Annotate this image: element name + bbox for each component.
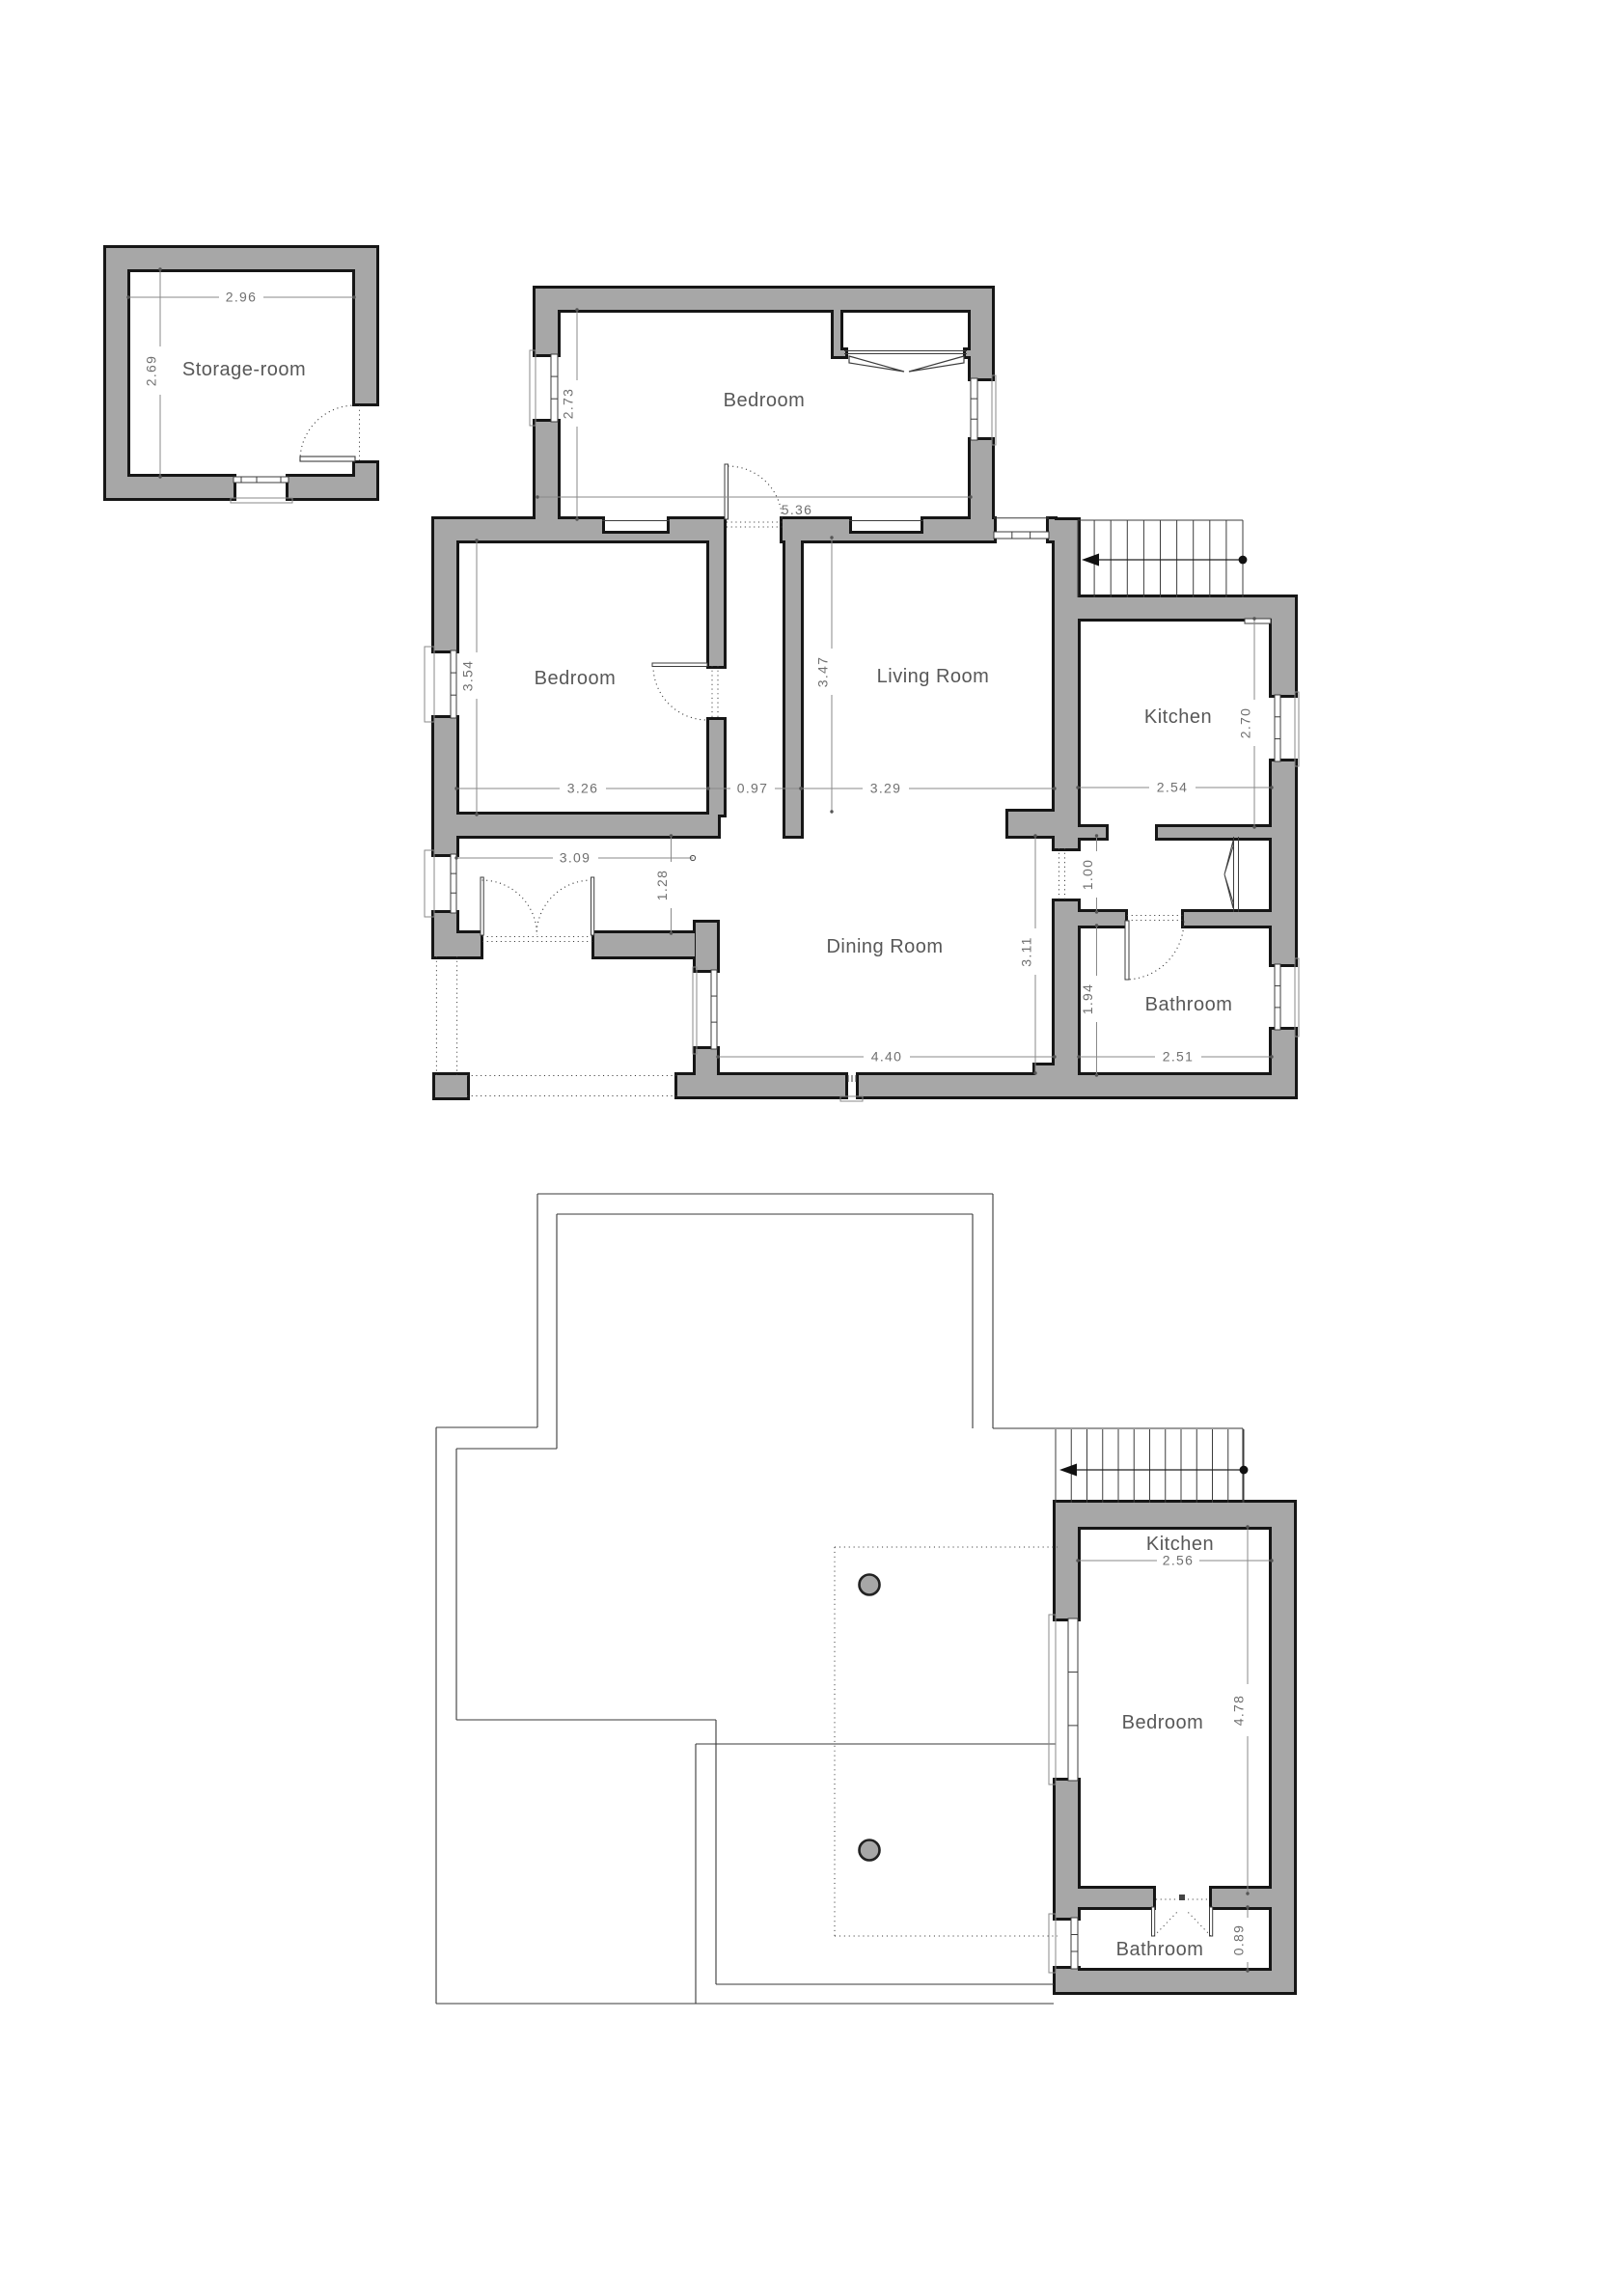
svg-text:Bedroom: Bedroom [1122, 1712, 1204, 1733]
svg-text:2.51: 2.51 [1163, 1049, 1194, 1065]
svg-text:4.40: 4.40 [871, 1049, 902, 1065]
svg-text:Bathroom: Bathroom [1145, 994, 1233, 1015]
svg-text:3.47: 3.47 [815, 656, 831, 687]
svg-text:Bedroom: Bedroom [724, 390, 806, 411]
svg-text:Dining Room: Dining Room [826, 936, 943, 957]
svg-text:5.36: 5.36 [782, 502, 812, 517]
svg-text:3.29: 3.29 [870, 781, 901, 796]
svg-text:3.26: 3.26 [567, 781, 598, 796]
svg-text:3.09: 3.09 [560, 850, 591, 866]
svg-text:3.11: 3.11 [1019, 936, 1034, 966]
svg-text:3.54: 3.54 [460, 660, 476, 691]
svg-text:4.78: 4.78 [1231, 1695, 1247, 1726]
svg-text:1.28: 1.28 [654, 870, 670, 900]
svg-text:0.97: 0.97 [737, 781, 768, 796]
svg-text:Storage-room: Storage-room [182, 359, 306, 380]
svg-text:Bedroom: Bedroom [535, 668, 617, 689]
svg-text:Living Room: Living Room [877, 666, 990, 687]
svg-text:Bathroom: Bathroom [1116, 1939, 1204, 1960]
svg-text:Kitchen: Kitchen [1144, 706, 1212, 728]
svg-text:2.56: 2.56 [1163, 1553, 1194, 1568]
svg-text:2.54: 2.54 [1157, 780, 1188, 795]
svg-text:1.94: 1.94 [1080, 983, 1095, 1014]
svg-text:2.69: 2.69 [144, 355, 159, 386]
svg-text:1.00: 1.00 [1080, 859, 1095, 890]
svg-text:0.89: 0.89 [1231, 1924, 1247, 1955]
svg-text:2.96: 2.96 [226, 290, 257, 305]
svg-text:2.73: 2.73 [561, 388, 576, 419]
svg-text:2.70: 2.70 [1238, 707, 1253, 738]
